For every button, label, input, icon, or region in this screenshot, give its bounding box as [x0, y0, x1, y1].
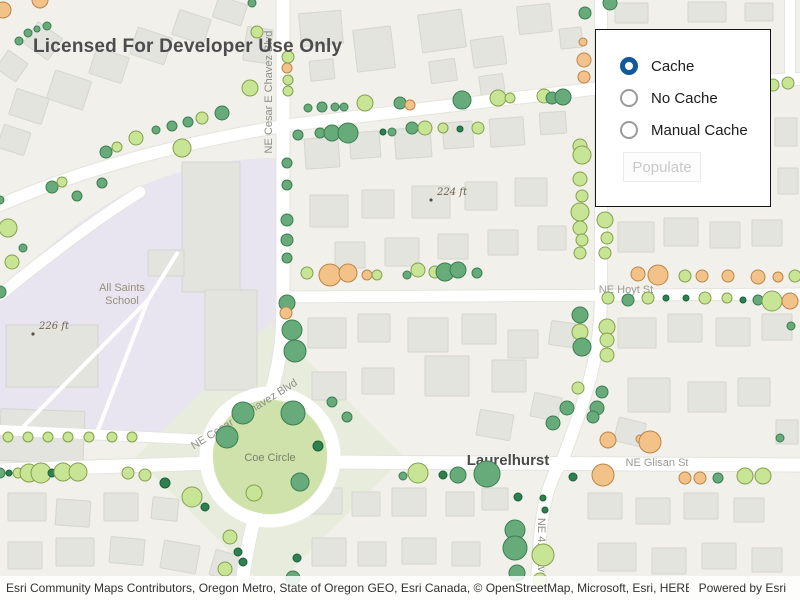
building — [352, 492, 380, 516]
tree-marker — [546, 416, 560, 430]
building — [362, 368, 394, 394]
tree-marker — [46, 181, 58, 193]
radio-manual-cache[interactable]: Manual Cache — [620, 120, 748, 140]
tree-marker — [789, 270, 800, 282]
building — [392, 488, 426, 516]
building — [652, 548, 686, 574]
tree-marker — [248, 0, 256, 7]
building — [482, 488, 508, 510]
tree-marker — [246, 485, 262, 501]
tree-marker — [453, 91, 471, 109]
building — [738, 378, 770, 406]
tree-marker — [438, 123, 448, 133]
building — [492, 360, 526, 392]
tree-marker — [740, 297, 746, 303]
building — [476, 409, 514, 441]
populate-button[interactable]: Populate — [623, 152, 701, 182]
tree-marker — [215, 106, 229, 120]
building — [55, 499, 91, 527]
building — [310, 195, 348, 227]
tree-marker — [403, 271, 411, 279]
powered-by-esri: Powered by Esri — [699, 581, 786, 595]
building — [618, 318, 656, 348]
tree-marker — [139, 469, 151, 481]
tree-marker — [152, 126, 160, 134]
tree-marker — [573, 221, 587, 235]
building — [752, 220, 782, 246]
cache-options-panel: Cache No Cache Manual Cache Populate — [595, 29, 771, 207]
tree-marker — [602, 292, 614, 304]
building — [489, 117, 525, 147]
tree-marker — [284, 340, 306, 362]
road — [326, 462, 800, 465]
tree-marker — [112, 142, 122, 152]
tree-marker — [5, 255, 19, 269]
tree-marker — [622, 294, 634, 306]
building — [205, 290, 257, 390]
building — [418, 9, 467, 53]
tree-marker — [283, 86, 293, 96]
tree-marker — [293, 554, 301, 562]
map-label: Coe Circle — [244, 452, 295, 464]
building — [385, 238, 419, 266]
building — [8, 542, 42, 569]
attribution-sources: Esri Community Maps Contributors, Oregon… — [6, 581, 689, 595]
tree-marker — [97, 178, 107, 188]
tree-marker — [182, 487, 202, 507]
building — [408, 318, 448, 352]
building — [636, 498, 670, 524]
building — [710, 222, 740, 248]
tree-marker — [572, 324, 588, 340]
tree-marker — [587, 411, 599, 423]
tree-marker — [782, 77, 794, 89]
radio-button-icon[interactable] — [620, 89, 638, 107]
tree-marker — [84, 432, 94, 442]
building — [462, 314, 496, 344]
tree-marker — [127, 432, 137, 442]
building — [446, 492, 474, 516]
license-watermark: Licensed For Developer Use Only — [33, 36, 342, 58]
tree-marker — [280, 307, 292, 319]
building — [668, 314, 702, 342]
tree-marker — [291, 473, 309, 491]
building — [615, 3, 648, 23]
building — [515, 178, 547, 206]
tree-marker — [450, 467, 466, 483]
tree-marker — [167, 121, 177, 131]
building — [688, 2, 726, 22]
tree-marker — [474, 461, 500, 487]
tree-marker — [597, 212, 613, 228]
tree-marker — [183, 117, 193, 127]
tree-marker — [173, 139, 191, 157]
building — [598, 543, 636, 571]
building — [309, 59, 335, 81]
tree-marker — [43, 432, 53, 442]
tree-marker — [107, 432, 117, 442]
tree-marker — [573, 146, 591, 164]
tree-marker — [679, 270, 691, 282]
tree-marker — [722, 270, 734, 282]
tree-marker — [317, 102, 327, 112]
tree-marker — [648, 265, 668, 285]
elevation-dot — [429, 198, 432, 201]
tree-marker — [573, 172, 587, 186]
building — [488, 230, 518, 255]
tree-marker — [242, 80, 258, 96]
tree-marker — [15, 37, 23, 45]
tree-marker — [578, 71, 590, 83]
tree-marker — [372, 270, 382, 280]
tree-marker — [592, 464, 614, 486]
tree-marker — [218, 562, 232, 576]
tree-marker — [542, 507, 548, 513]
tree-marker — [282, 63, 292, 73]
tree-marker — [0, 196, 4, 204]
tree-marker — [753, 295, 763, 305]
tree-marker — [490, 90, 506, 106]
tree-marker — [313, 441, 323, 451]
tree-marker — [555, 89, 571, 105]
tree-marker — [755, 468, 771, 484]
map-app-window: NE Cesar E Chavez BlvdNE Cesar E Chavez … — [0, 0, 800, 600]
elevation-label: 226 ft — [38, 321, 70, 332]
building — [8, 493, 46, 521]
tree-marker — [283, 75, 293, 85]
tree-marker — [338, 123, 358, 143]
tree-marker — [751, 270, 765, 284]
tree-marker — [24, 29, 32, 37]
building — [151, 497, 179, 522]
building — [304, 137, 340, 169]
building — [470, 36, 507, 68]
building — [628, 378, 670, 412]
tree-marker — [129, 131, 143, 145]
tree-marker — [418, 121, 432, 135]
building — [588, 493, 622, 519]
tree-marker — [722, 293, 732, 303]
radio-label: No Cache — [651, 90, 718, 107]
tree-marker — [450, 262, 466, 278]
tree-marker — [787, 322, 795, 330]
tree-marker — [282, 180, 292, 190]
tree-marker — [599, 247, 611, 259]
tree-marker — [327, 397, 337, 407]
tree-marker — [683, 295, 689, 301]
radio-label: Manual Cache — [651, 122, 748, 139]
tree-marker — [571, 203, 589, 221]
building — [312, 372, 346, 400]
building — [539, 111, 566, 135]
building — [559, 27, 583, 49]
tree-marker — [472, 122, 484, 134]
building — [6, 325, 98, 387]
radio-cache[interactable]: Cache — [620, 56, 694, 76]
building — [429, 58, 458, 83]
tree-marker — [503, 536, 527, 560]
tree-marker — [596, 386, 608, 398]
building — [109, 537, 145, 566]
tree-marker — [560, 401, 574, 415]
building — [548, 320, 575, 347]
tree-marker — [281, 234, 293, 246]
tree-marker — [472, 268, 482, 278]
tree-marker — [342, 412, 352, 422]
tree-marker — [573, 338, 591, 356]
tree-marker — [301, 267, 313, 279]
tree-marker — [19, 244, 27, 252]
tree-marker — [100, 146, 112, 158]
tree-marker — [122, 467, 134, 479]
tree-marker — [737, 468, 753, 484]
tree-marker — [304, 104, 312, 112]
tree-marker — [574, 247, 586, 259]
building — [362, 190, 394, 218]
tree-marker — [439, 471, 447, 479]
tree-marker — [601, 232, 613, 244]
building — [425, 356, 469, 396]
building — [745, 3, 773, 21]
building — [716, 318, 750, 346]
tree-marker — [603, 0, 617, 10]
building — [160, 540, 200, 574]
building — [312, 538, 346, 566]
tree-marker — [782, 293, 798, 309]
tree-marker — [6, 470, 12, 476]
building — [402, 538, 436, 564]
elevation-dot — [31, 332, 34, 335]
building — [452, 542, 480, 566]
tree-marker — [281, 214, 293, 226]
building — [438, 234, 468, 259]
tree-marker — [388, 128, 396, 136]
tree-marker — [406, 122, 418, 134]
tree-marker — [394, 97, 406, 109]
tree-marker — [380, 129, 386, 135]
tree-marker — [43, 22, 51, 30]
tree-marker — [63, 432, 73, 442]
tree-marker — [696, 270, 708, 282]
tree-marker — [405, 100, 415, 110]
building — [56, 538, 94, 566]
building — [517, 3, 553, 34]
tree-marker — [34, 26, 40, 32]
tree-marker — [457, 126, 463, 132]
map-label: All Saints — [99, 282, 145, 294]
tree-marker — [505, 93, 515, 103]
tree-marker — [600, 432, 616, 448]
building — [688, 382, 726, 412]
tree-marker — [639, 431, 661, 453]
tree-marker — [762, 291, 782, 311]
tree-marker — [631, 267, 645, 281]
tree-marker — [600, 333, 614, 347]
tree-marker — [540, 495, 546, 501]
tree-marker — [340, 103, 348, 111]
radio-button-icon[interactable] — [620, 121, 638, 139]
tree-marker — [577, 53, 591, 67]
tree-marker — [576, 190, 588, 202]
tree-marker — [362, 270, 372, 280]
building — [358, 314, 390, 342]
radio-button-icon[interactable] — [620, 57, 638, 75]
tree-marker — [776, 434, 784, 442]
tree-marker — [282, 320, 302, 340]
tree-marker — [69, 463, 87, 481]
attribution-bar: Esri Community Maps Contributors, Oregon… — [0, 576, 800, 600]
tree-marker — [663, 295, 669, 301]
radio-no-cache[interactable]: No Cache — [620, 88, 718, 108]
tree-marker — [357, 95, 373, 111]
tree-marker — [699, 292, 711, 304]
tree-marker — [600, 348, 614, 362]
tree-marker — [773, 272, 783, 282]
tree-marker — [72, 191, 82, 201]
tree-marker — [57, 177, 67, 187]
building — [734, 498, 764, 522]
building — [308, 318, 346, 348]
tree-marker — [23, 432, 33, 442]
tree-marker — [282, 253, 292, 263]
tree-marker — [160, 478, 170, 488]
tree-marker — [223, 530, 237, 544]
building — [684, 493, 718, 519]
building — [538, 226, 566, 250]
radio-label: Cache — [651, 58, 694, 75]
tree-marker — [694, 472, 706, 484]
tree-marker — [319, 264, 341, 286]
building — [752, 548, 782, 572]
building — [465, 182, 497, 210]
tree-marker — [0, 219, 17, 237]
building — [182, 162, 240, 292]
tree-marker — [234, 548, 242, 556]
tree-marker — [572, 307, 588, 323]
tree-marker — [201, 503, 209, 511]
tree-marker — [411, 263, 425, 277]
map-label: School — [105, 295, 139, 307]
tree-marker — [232, 402, 254, 424]
tree-marker — [576, 234, 588, 246]
tree-marker — [0, 2, 11, 18]
elevation-label: 224 ft — [436, 187, 468, 198]
building — [702, 543, 736, 569]
tree-marker — [281, 401, 305, 425]
tree-marker — [569, 473, 577, 481]
tree-marker — [642, 292, 654, 304]
tree-marker — [579, 7, 591, 19]
building — [664, 218, 698, 246]
tree-marker — [293, 130, 303, 140]
building — [104, 493, 138, 521]
tree-marker — [408, 463, 428, 483]
tree-marker — [572, 382, 584, 394]
building — [358, 542, 386, 566]
tree-marker — [713, 473, 723, 483]
building — [775, 118, 797, 146]
building — [353, 26, 396, 72]
tree-marker — [679, 472, 691, 484]
tree-marker — [216, 426, 238, 448]
building — [508, 330, 538, 358]
tree-marker — [339, 264, 357, 282]
tree-marker — [331, 103, 339, 111]
tree-marker — [579, 38, 587, 46]
tree-marker — [399, 472, 407, 480]
tree-marker — [514, 493, 522, 501]
tree-marker — [3, 432, 13, 442]
tree-marker — [532, 544, 554, 566]
building — [778, 168, 798, 194]
tree-marker — [282, 158, 292, 168]
map-label: NE Glisan St — [626, 457, 689, 469]
tree-marker — [239, 558, 247, 566]
building — [618, 222, 654, 252]
tree-marker — [196, 112, 208, 124]
